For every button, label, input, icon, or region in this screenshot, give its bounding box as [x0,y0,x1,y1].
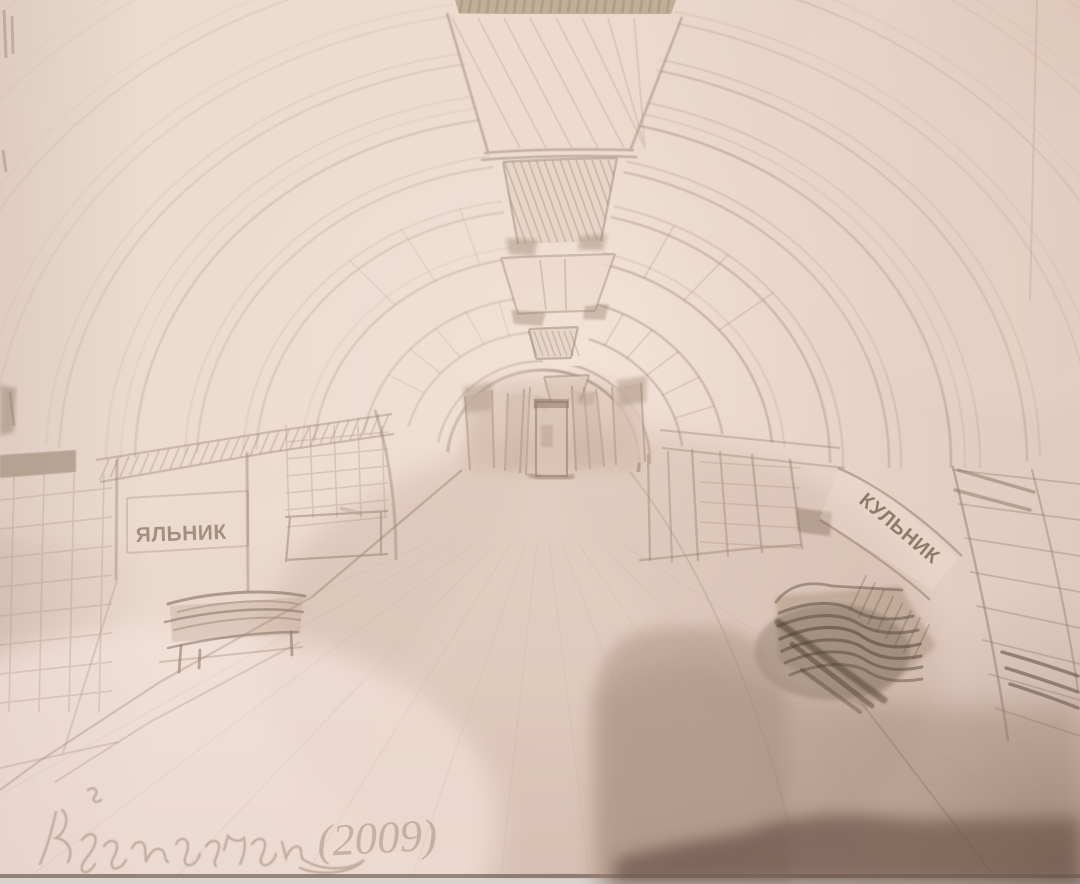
svg-text:(2009): (2009) [316,810,438,866]
svg-text:ЯЛЬНИК: ЯЛЬНИК [135,521,227,547]
